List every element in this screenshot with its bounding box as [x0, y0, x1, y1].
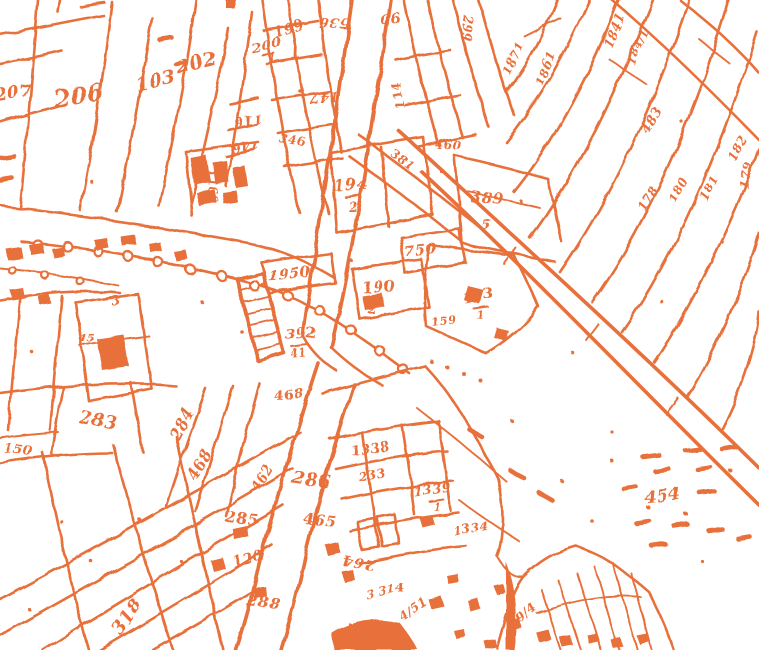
parcel-label: 202 [173, 48, 219, 80]
topcenter-parcel-strips-element [285, 158, 342, 167]
left-village-block-element [89, 389, 152, 401]
parcel-label: 381 [388, 146, 418, 173]
bottomcentre-parcels-element [342, 570, 355, 582]
parcel-label: 468 [274, 386, 305, 406]
scan-noise-specks-element [720, 240, 724, 244]
bottomright-block-element [541, 589, 561, 650]
left-village-block-element [149, 242, 162, 253]
left-village-block-element [174, 250, 188, 261]
topleft-parcel-strips-element [80, 2, 104, 6]
bottomcentre-parcels-element [484, 639, 497, 649]
parcel-label: 286 [290, 467, 333, 493]
scan-noise-specks-element [298, 89, 302, 93]
topleft-parcel-strips-element [160, 38, 172, 40]
scan-noise-specks-element [88, 558, 92, 562]
scan-noise-specks-element [138, 518, 142, 522]
smudge-dashes-element [709, 529, 722, 531]
centre-parcels-element [331, 137, 423, 153]
pentagon-parcel-193-element [430, 360, 434, 364]
topleft-parcel-strips-element [0, 51, 62, 64]
parcel-label: 465 [302, 509, 337, 530]
centre-parcels-element [381, 147, 389, 227]
bottomright-block-element [536, 629, 551, 642]
fraction-bars-element [345, 195, 360, 197]
parcel-label: 299 [459, 14, 474, 42]
bottomcentre-parcels-element [322, 366, 425, 393]
bottomright-block-element [613, 563, 637, 650]
left-village-block-element [138, 294, 152, 389]
pole-symbols-element [218, 272, 227, 281]
pentagon-parcel-193-element [462, 372, 466, 376]
pole-lined-road-element [0, 268, 118, 285]
scan-noise-specks-element [519, 199, 522, 202]
parcel-label: 1841 [601, 11, 628, 49]
parcel-label: 285 [223, 507, 259, 528]
hatched-road-strip-element [246, 308, 271, 314]
parcel-label: 1 [477, 309, 485, 322]
strips-right-of-road [396, 0, 514, 147]
bottomleft-strip-grid [0, 432, 300, 650]
smudge-dashes-element [684, 512, 688, 516]
parcel-label: 454 [643, 484, 682, 508]
bottomcentre-parcels-element [402, 425, 415, 515]
smudge-dashes-element [610, 459, 614, 463]
parcel-label: 1 [269, 53, 278, 67]
topright-strip-fan-element [514, 0, 619, 192]
pole-symbols-element [250, 281, 259, 290]
scan-noise-specks-element [660, 300, 664, 304]
parcel-label: 318 [108, 595, 148, 639]
topleft-parcel-strips-element [0, 15, 103, 35]
pole-symbols-element [42, 272, 49, 279]
scan-noise-specks-element [470, 69, 473, 72]
diagonal-road-southeast-element [666, 398, 678, 414]
parcel-label: 199 [272, 17, 306, 40]
built-up-block-1166-element [222, 190, 238, 204]
pole-symbols-element [284, 292, 293, 301]
hatched-road-strip-element [255, 344, 280, 350]
parcel-label: 45 [79, 332, 95, 345]
cadastral-map-canvas: 2061032022072001199116146581166536901471… [0, 0, 759, 650]
centre-parcels-element [352, 269, 360, 319]
parcel-label: 182 [725, 133, 750, 163]
left-village-block-element [76, 294, 138, 303]
smudge-dashes-element [697, 467, 710, 469]
parcel-label: 1950 [267, 263, 312, 285]
bottomcentre-parcels-element [497, 479, 502, 556]
scan-noise-specks-element [510, 419, 513, 422]
scan-noise-specks-element [440, 170, 443, 173]
bottomright-block-element [595, 567, 619, 650]
centre-parcels-element [352, 259, 421, 269]
built-up-block-1166-element [233, 166, 248, 188]
parcel-label: 1871 [500, 39, 527, 77]
parcel-label: 114 [388, 79, 409, 110]
scan-noise-specks-element [130, 240, 133, 243]
topleft-parcel-strips-element [230, 98, 258, 104]
pentagon-parcel-193-element [478, 378, 482, 382]
parcel-label: 264 [342, 552, 375, 572]
scan-noise-specks-element [180, 560, 183, 563]
bottomcentre-parcels-element [428, 596, 444, 609]
parcel-label: 190 [362, 277, 396, 297]
scan-noise-specks-element [700, 559, 703, 562]
pole-symbols-element [124, 252, 133, 261]
left-village-block-element [52, 247, 65, 258]
scan-noise-specks-element [590, 519, 594, 523]
parcel-label: 5 [481, 216, 492, 234]
pole-symbols-element [376, 347, 385, 356]
scan-noise-specks-element [60, 520, 64, 524]
cadastral-map-scan: 2061032022072001199116146581166536901471… [0, 0, 759, 650]
topleft-parcel-strips-element [159, 0, 196, 206]
parcel-label: 159 [430, 312, 456, 329]
parcel-label: 194 [333, 174, 369, 195]
parcel-label: 483 [638, 104, 665, 136]
scan-noise-specks-element [30, 350, 34, 354]
left-village-block-element [8, 295, 20, 430]
bottomcentre-parcels-element [454, 629, 466, 639]
parcel-label: 3 314 [364, 581, 406, 602]
parcel-label: 181 [697, 173, 722, 203]
parcel-label: 346 [278, 131, 306, 149]
smudge-dashes-element [655, 469, 669, 471]
pole-symbols-element [64, 243, 73, 252]
parcel-label: 103 [133, 66, 178, 96]
bottomcentre-parcels-element [350, 513, 459, 531]
bottomright-block-element [586, 632, 598, 643]
pole-symbols-element [9, 267, 16, 274]
smudge-dashes-element [738, 537, 750, 539]
parcel-label: 288 [245, 592, 280, 613]
parcel-label: 1339 [413, 480, 453, 500]
hatched-road-strip-element [252, 332, 277, 338]
topright-strip-fan-element [560, 0, 689, 272]
parcels-283-element [131, 383, 143, 452]
parcel-labels-layer: 2061032022072001199116146581166536901471… [0, 9, 756, 650]
parcel-label: 184/1 [624, 27, 651, 66]
bottomcentre-parcels-element [538, 492, 552, 500]
bottomcentre-parcels-element [470, 430, 482, 437]
left-village-block-element [29, 243, 44, 255]
topleft-parcel-strips-element [117, 18, 152, 212]
smudge-dashes-element [686, 449, 701, 451]
smudge-dashes-element [729, 469, 733, 473]
bottomright-block-element [560, 636, 573, 647]
parcel-label: 389 [470, 188, 504, 208]
smudge-dashes-element [624, 487, 636, 489]
topleft-parcel-strips-element [58, 0, 60, 12]
bottomcentre-parcels-element [325, 542, 341, 556]
left-village-block-element [10, 288, 25, 300]
parcel-label: 193 [461, 285, 494, 307]
scan-noise-specks-element [350, 259, 353, 262]
parcel-label: 180 [666, 175, 691, 205]
scan-noise-specks-element [610, 430, 613, 433]
bottomcentre-parcels-element [330, 421, 439, 439]
scan-noise-specks-element [240, 330, 244, 334]
bottomright-block-element [611, 638, 623, 648]
parcel-label: 150 [3, 442, 33, 460]
smudge-dashes-element [636, 521, 649, 523]
bottomcentre-parcels-element [497, 556, 524, 578]
topright-strip-fan-element [688, 232, 759, 396]
smudge-dashes-element [652, 544, 665, 546]
pole-symbols-element [154, 258, 163, 267]
scan-noise-specks-element [570, 350, 574, 354]
bottomcentre-parcels-element [468, 598, 481, 612]
pole-symbols-element [316, 307, 325, 316]
bottomcentre-parcels-element [447, 574, 460, 585]
bottomleft-strip-grid-element [210, 557, 225, 571]
bottomcentre-parcels-element [418, 409, 506, 481]
pole-symbols-element [77, 278, 84, 285]
parcel-label: 207 [0, 81, 33, 106]
parcel-label: 536 [318, 13, 350, 31]
parcel-label: 1334 [452, 518, 489, 538]
smudge-dashes-element [674, 524, 687, 526]
parcel-label: 1338 [351, 439, 391, 459]
bottomcentre-parcels-element [377, 514, 399, 546]
parcel-label: 3 [111, 294, 121, 309]
smudge-dashes-element [700, 491, 714, 493]
scan-noise-specks-element [560, 479, 564, 483]
parcels-283 [0, 383, 259, 516]
bottomright-block-element [637, 634, 649, 644]
centre-parcels-element [337, 215, 433, 233]
topleft-parcel-strips-element [226, 0, 236, 8]
parcel-label: 1 [434, 501, 442, 514]
scan-noise-specks-element [28, 608, 31, 611]
parcel-label: 283 [76, 406, 120, 435]
left-village-block-element [120, 234, 136, 246]
parcel-label: 179 [736, 161, 755, 190]
parcel-label: 392 [285, 325, 317, 343]
smudge-dashes-element [642, 454, 658, 456]
bottomcentre-parcels-element [357, 518, 379, 550]
centre-parcels-element [405, 263, 466, 273]
bottomright-block [497, 546, 674, 650]
bottomcentre-parcels-element [510, 470, 524, 478]
scan-noise-specks-element [680, 120, 683, 123]
pole-symbols-element [186, 265, 195, 274]
parcel-label: 233 [357, 465, 387, 484]
topleft-parcel-strips-element [0, 178, 12, 180]
pole-symbols-element [347, 326, 356, 335]
pentagon-parcel-193-element [446, 366, 450, 370]
hatched-road-strip-element [249, 320, 274, 326]
left-village-block-element [6, 247, 23, 260]
parcel-label: 468 [184, 446, 215, 483]
parcel-label: 178 [635, 183, 660, 213]
topright-strip-fan-element [612, 0, 759, 140]
scan-noise-specks-element [90, 180, 94, 184]
bottomcentre-parcels-element [494, 584, 505, 594]
left-village-block-element [97, 335, 129, 370]
parcel-label: 2 [367, 302, 377, 316]
parcel-label: 2 [347, 200, 358, 215]
centre-parcels-element [331, 253, 335, 283]
parcel-label: 41 [290, 346, 307, 360]
scan-noise-specks-element [200, 300, 204, 304]
topleft-parcel-strips-element [0, 156, 14, 158]
parcels-283-element [0, 432, 58, 438]
scan-noise-specks-element [422, 300, 425, 303]
parcel-label: 147 [308, 88, 340, 106]
parcel-label: 90 [379, 9, 401, 27]
smudge-dashes-element [722, 447, 735, 449]
bottomleft-strip-grid-element [43, 453, 89, 650]
parcel-label: 460 [435, 137, 463, 153]
topright-strip-fan-element [722, 312, 759, 428]
parcel-label: 750 [403, 239, 438, 260]
left-village-block-element [94, 238, 109, 250]
hatched-road-strip-element [243, 296, 267, 302]
left-village-block-element [38, 294, 51, 305]
parcel-label: 4/51 [396, 594, 430, 623]
